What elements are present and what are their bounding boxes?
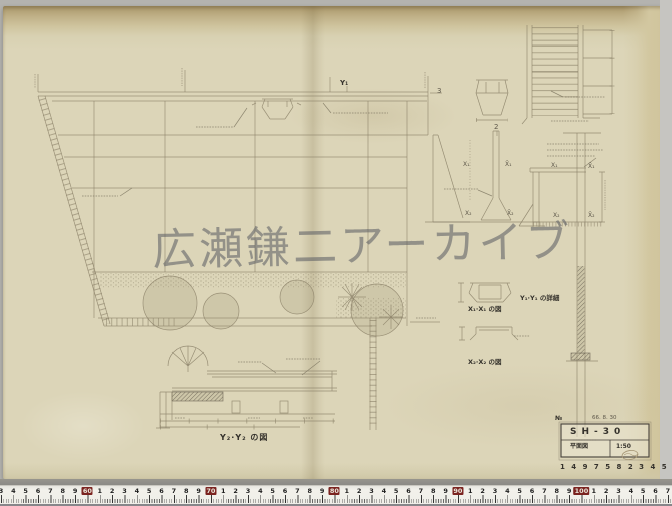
ruler-number: 8 — [554, 487, 559, 495]
sect-mark-x2: X₂ — [553, 213, 560, 219]
ruler-number: 7 — [419, 487, 424, 495]
sect-mark-x1: X₁ — [551, 163, 558, 169]
ruler-number: 2 — [357, 487, 362, 495]
ruler-number: 1 — [468, 487, 473, 495]
ruler-number: 1 — [592, 487, 597, 495]
ruler-decade-number: 60 — [82, 487, 93, 495]
ruler-number: 3 — [616, 487, 621, 495]
grid-mark-3: 3 — [437, 88, 441, 95]
ruler-number: 9 — [73, 487, 78, 495]
ruler-number: 3 — [246, 487, 251, 495]
ruler-number: 5 — [147, 487, 152, 495]
ruler-number: 8 — [307, 487, 312, 495]
ruler-number: 5 — [394, 487, 399, 495]
ruler-number: 6 — [36, 487, 41, 495]
section-label-x1x1: X₁·X₁ の図 — [468, 306, 501, 313]
ruler-number: 9 — [196, 487, 201, 495]
ruler-decade-number: 80 — [329, 487, 340, 495]
ruler-decade-number: 100 — [574, 487, 590, 495]
sect-mark-x1r: X̄₁ — [588, 164, 595, 170]
ruler-number: 7 — [48, 487, 53, 495]
ruler-number: 6 — [159, 487, 164, 495]
ruler-number: 8 — [184, 487, 189, 495]
ruler-number: 9 — [443, 487, 448, 495]
ruler-number: 7 — [542, 487, 547, 495]
ruler-ticks-minor — [1, 499, 672, 503]
ruler-number: 7 — [666, 487, 671, 495]
ruler-number: 4 — [629, 487, 634, 495]
elev-mark-x2: X₂ — [465, 211, 472, 217]
ruler-number: 6 — [406, 487, 411, 495]
archive-photo: 広瀬鎌二アーカイブ Y₁ 3 2 X₁ X̄₁ X₂ X̄₂ X₁ X̄₁ X₂… — [0, 0, 672, 506]
ruler-number: 5 — [517, 487, 522, 495]
ruler-number: 5 — [23, 487, 28, 495]
sect-mark-x2r: X̄₂ — [588, 213, 595, 219]
ruler-number: 7 — [295, 487, 300, 495]
watermark: 広瀬鎌二アーカイブ — [151, 206, 552, 278]
titleblock-drawing-number: SH-30 — [570, 428, 625, 437]
section-label-y1y1: Y₁·Y₁ の詳細 — [520, 295, 559, 302]
ruler-number: 6 — [530, 487, 535, 495]
section-detail-bottom-left — [156, 346, 337, 428]
ruler-number: 3 — [0, 487, 3, 495]
ruler-number: 8 — [431, 487, 436, 495]
section-label-x2x2: X₂·X₂ の図 — [468, 359, 501, 366]
ruler-number: 5 — [270, 487, 275, 495]
ruler-number: 9 — [567, 487, 572, 495]
ruler-number: 2 — [480, 487, 485, 495]
elev-mark-x1r: X̄₁ — [505, 162, 512, 168]
titleblock-stamp-row: 1 4 9 7 5 8 2 3 4 5 9 — [560, 464, 672, 471]
ruler-number: 3 — [122, 487, 127, 495]
ruler-number: 4 — [258, 487, 263, 495]
grid-mark-y1: Y₁ — [340, 80, 348, 87]
elev-mark-x2r: X̄₂ — [507, 211, 514, 217]
ruler-number: 6 — [653, 487, 658, 495]
ruler-decade-number: 70 — [205, 487, 216, 495]
ruler-number: 4 — [382, 487, 387, 495]
ruler-number: 9 — [320, 487, 325, 495]
titleblock-date: 66. 8. 30 — [592, 416, 617, 422]
ruler-number: 7 — [172, 487, 177, 495]
stair-plan — [522, 25, 612, 124]
ruler-number: 1 — [221, 487, 226, 495]
ruler-number: 6 — [283, 487, 288, 495]
ruler-number: 3 — [493, 487, 498, 495]
elev-mark-x1: X₁ — [463, 162, 470, 168]
titleblock-scale: 1:50 — [616, 444, 631, 450]
ruler-number: 5 — [641, 487, 646, 495]
ruler-number: 2 — [233, 487, 238, 495]
post-section-detail — [519, 133, 605, 437]
ruler-number: 2 — [110, 487, 115, 495]
ruler-number: 8 — [60, 487, 65, 495]
ruler-number: 2 — [604, 487, 609, 495]
titleblock-drawing-title: 平面図 — [570, 444, 588, 450]
ruler-number: 1 — [345, 487, 350, 495]
ruler-number: 4 — [11, 487, 16, 495]
ruler-decade-number: 90 — [452, 487, 463, 495]
ruler-number: 1 — [98, 487, 103, 495]
ruler-number: 4 — [505, 487, 510, 495]
ruler-number: 3 — [369, 487, 374, 495]
photo-ruler: 3456789601234567897012345678980123456789… — [0, 485, 672, 504]
grid-mark-2: 2 — [494, 124, 498, 131]
titleblock-no-mark: № — [555, 416, 562, 422]
section-label-bottom: Y₂·Y₂ の図 — [220, 434, 268, 442]
ruler-number: 4 — [135, 487, 140, 495]
